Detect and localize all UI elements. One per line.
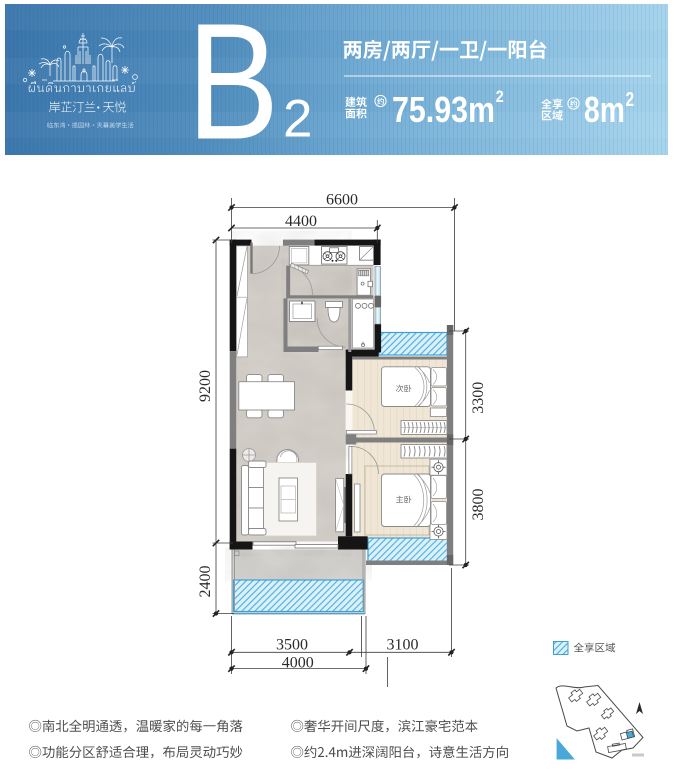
- svg-text:8m: 8m: [584, 90, 625, 130]
- svg-text:B: B: [187, 0, 279, 174]
- svg-text:3800: 3800: [470, 489, 487, 521]
- svg-text:2: 2: [625, 88, 634, 110]
- svg-text:4000: 4000: [282, 654, 314, 671]
- svg-text:2: 2: [496, 88, 504, 106]
- svg-text:9200: 9200: [197, 370, 214, 402]
- svg-text:2: 2: [283, 90, 312, 149]
- svg-text:75.93m: 75.93m: [392, 91, 495, 131]
- svg-text:3500: 3500: [276, 636, 308, 653]
- svg-text:2400: 2400: [197, 566, 214, 598]
- svg-text:3100: 3100: [387, 636, 419, 653]
- svg-text:4400: 4400: [285, 213, 317, 230]
- svg-text:3300: 3300: [470, 382, 487, 414]
- svg-text:6600: 6600: [326, 192, 358, 209]
